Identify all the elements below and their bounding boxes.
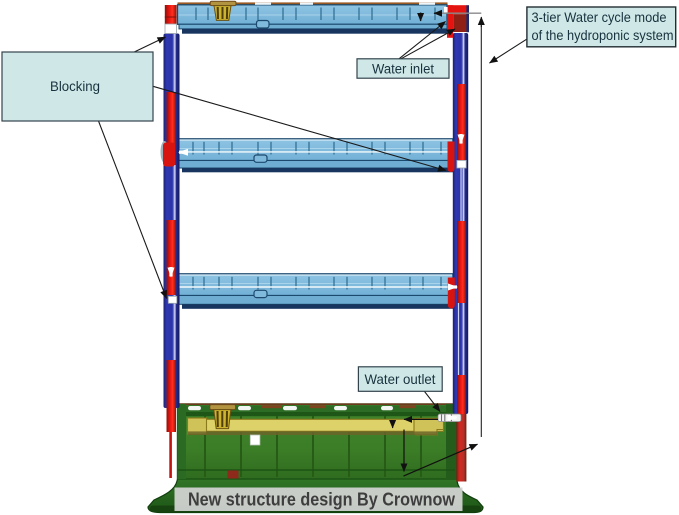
svg-text:Water inlet: Water inlet xyxy=(372,61,434,76)
svg-text:Blocking: Blocking xyxy=(50,78,100,94)
svg-text:New structure design By Crowno: New structure design By Crownow xyxy=(188,489,456,510)
svg-text:Water outlet: Water outlet xyxy=(365,371,436,387)
svg-text:3-tier Water cycle mode: 3-tier Water cycle mode xyxy=(532,9,667,25)
svg-text:of the hydroponic system: of the hydroponic system xyxy=(532,27,674,43)
